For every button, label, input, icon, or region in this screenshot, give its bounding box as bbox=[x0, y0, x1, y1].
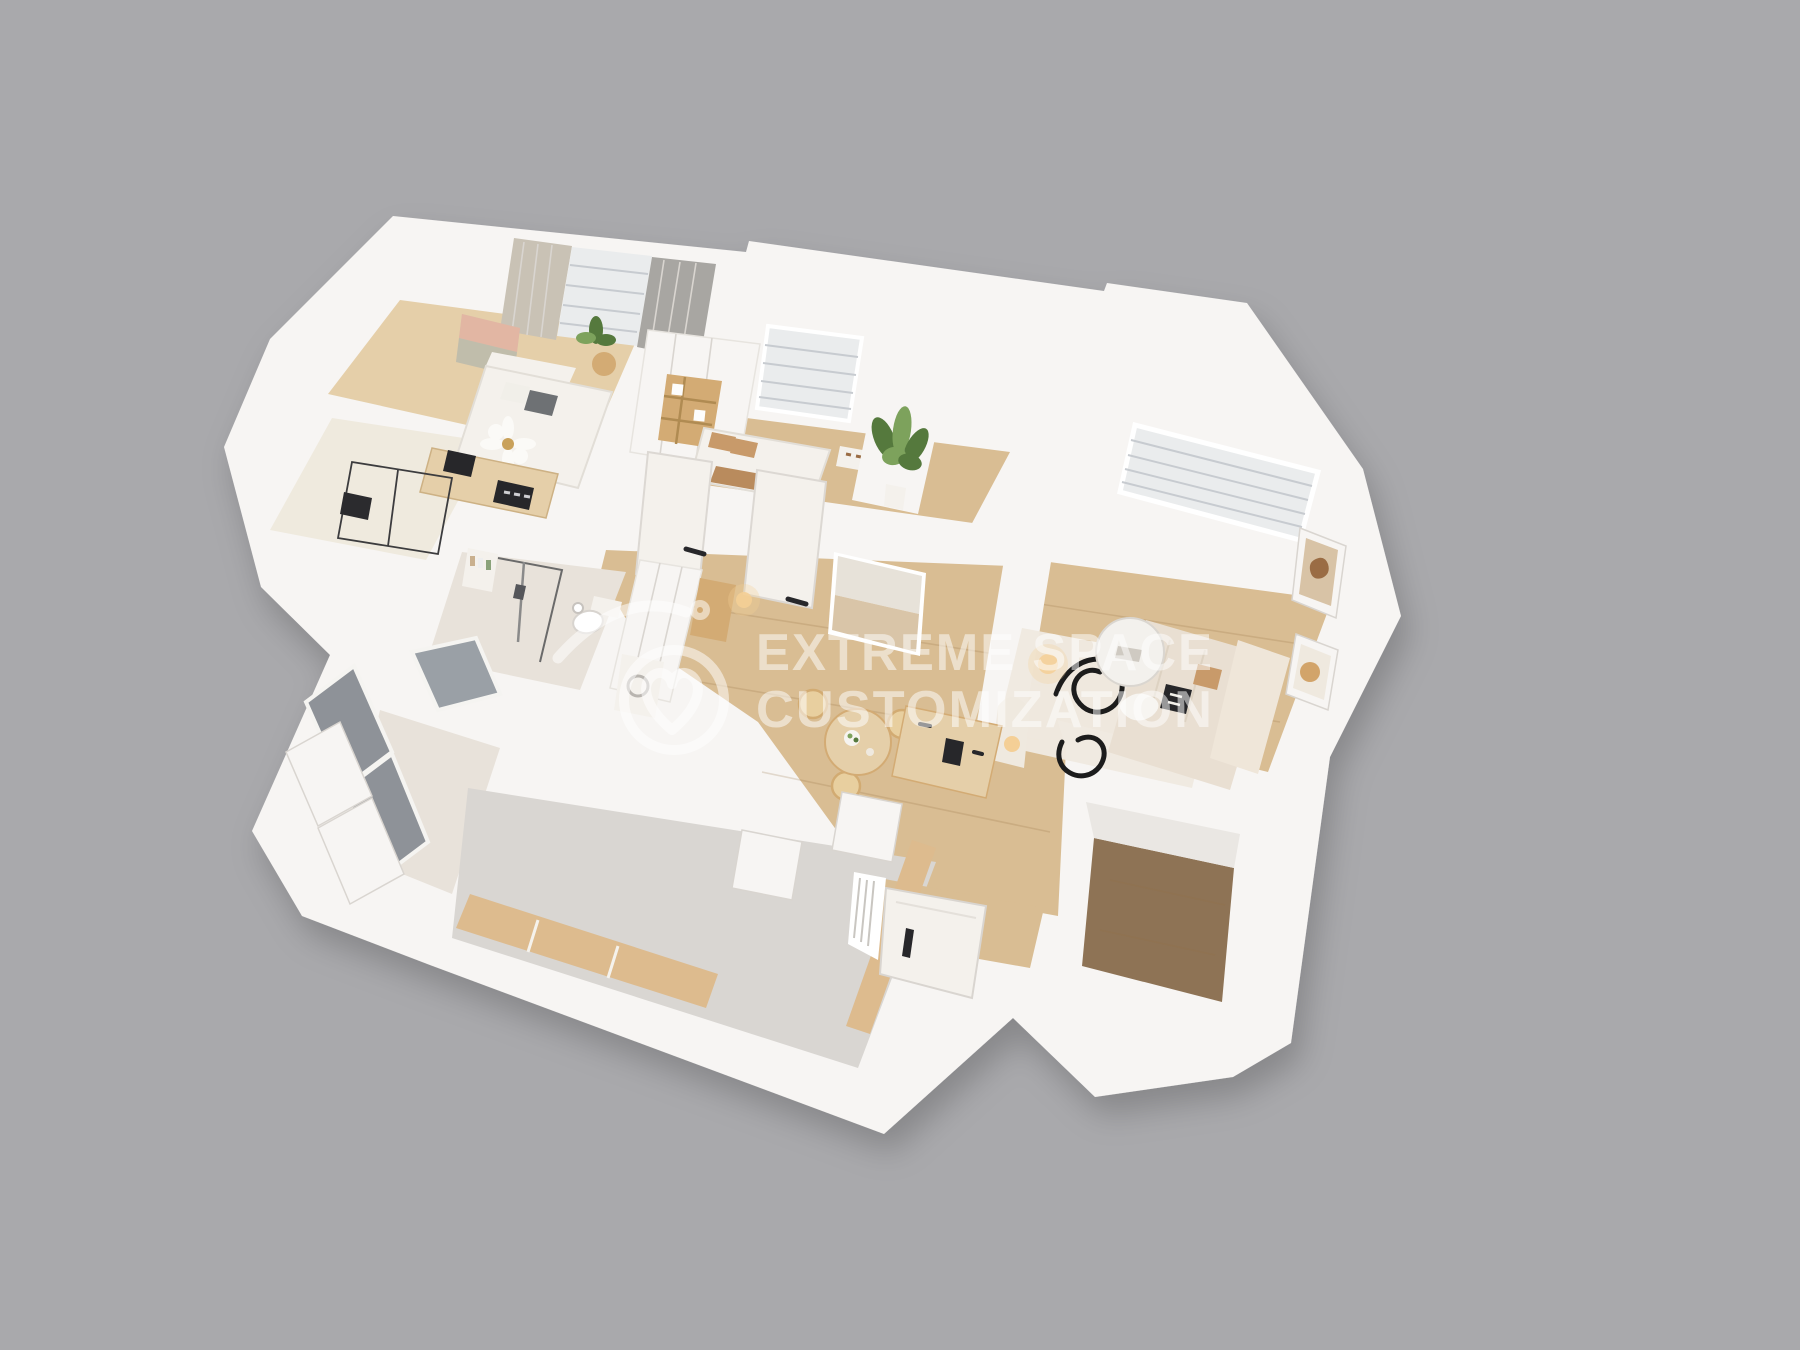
bath-shelf bbox=[462, 548, 498, 592]
pendant-glow bbox=[736, 592, 752, 608]
toiletry-bottle-2 bbox=[478, 558, 483, 568]
master-window-blinds bbox=[557, 247, 652, 346]
shelf-frame-2 bbox=[693, 410, 705, 422]
toiletry-bottle-3 bbox=[486, 560, 491, 570]
watermark-line-2: CUSTOMIZATION bbox=[756, 681, 1214, 739]
framed-wall-panel-2 bbox=[732, 830, 802, 900]
side-table bbox=[592, 352, 616, 376]
shelf-frame-1 bbox=[671, 384, 683, 396]
wall-art-motif-2 bbox=[1300, 662, 1320, 682]
framed-wall-panel-1 bbox=[832, 792, 902, 862]
plant-pot bbox=[884, 484, 906, 510]
dining-cup bbox=[866, 748, 874, 756]
toilet-paper-holder bbox=[573, 603, 583, 613]
floor-plan-render: EXTREME SPACE CUSTOMIZATION bbox=[0, 0, 1800, 1350]
floor-plan-stage: EXTREME SPACE CUSTOMIZATION bbox=[0, 0, 1800, 1350]
watermark-line-1: EXTREME SPACE bbox=[756, 624, 1214, 682]
door-2 bbox=[744, 470, 826, 608]
toiletry-bottle-1 bbox=[470, 556, 475, 566]
